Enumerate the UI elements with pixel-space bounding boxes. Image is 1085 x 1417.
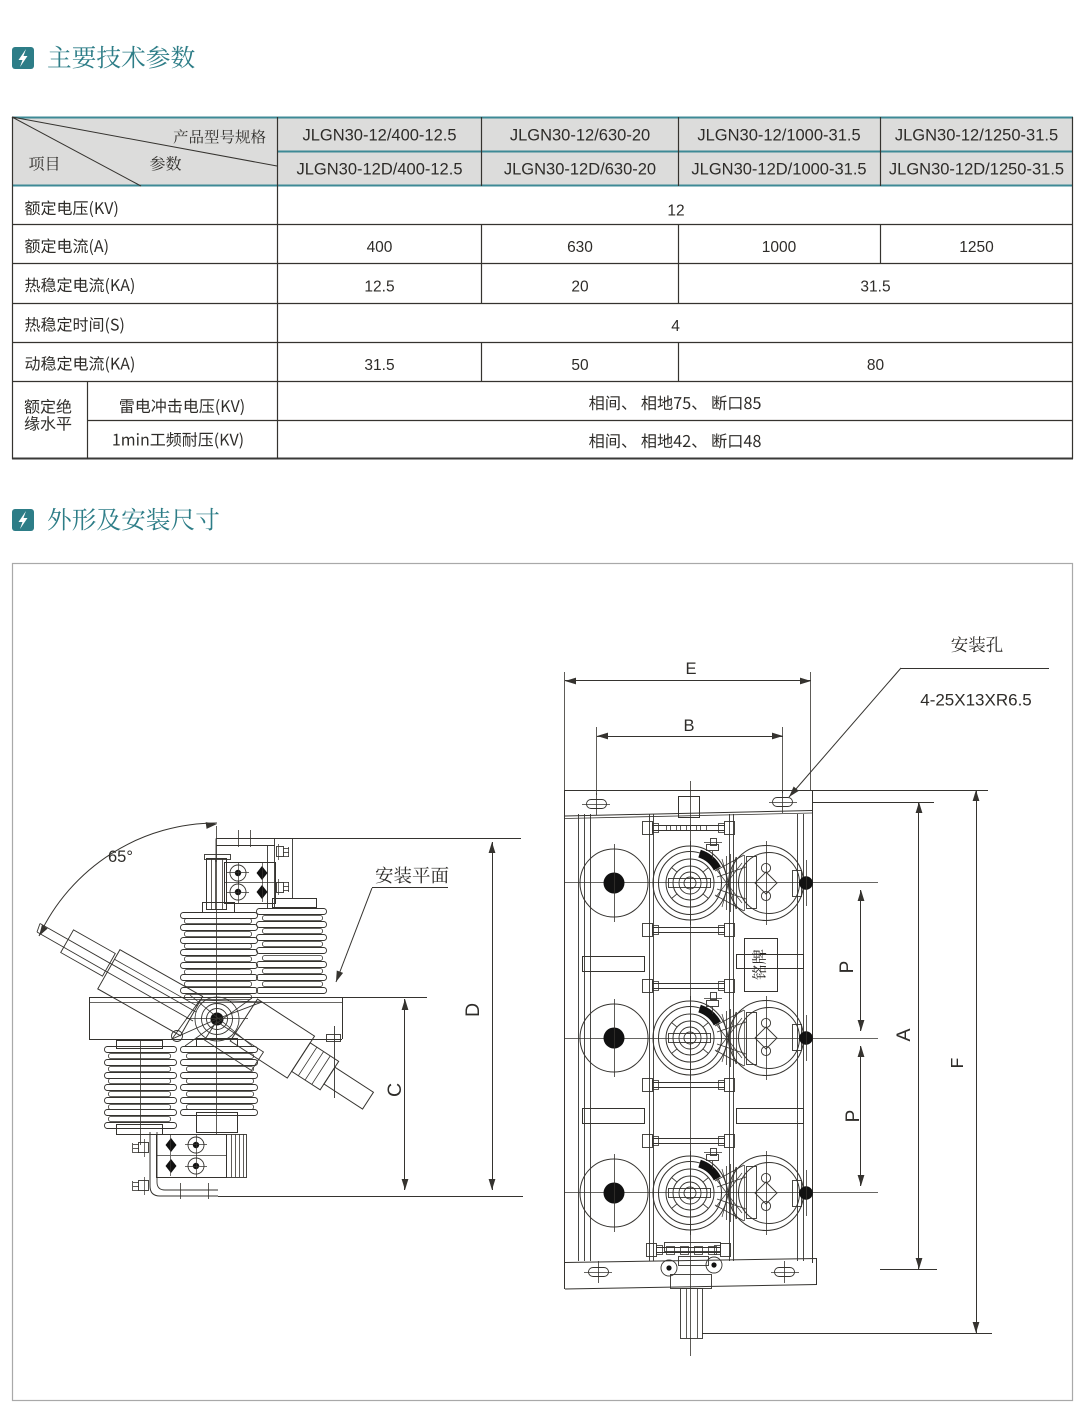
svg-text:JLGN30-12D/1000-31.5: JLGN30-12D/1000-31.5: [691, 161, 866, 179]
svg-text:D: D: [462, 1003, 484, 1017]
svg-text:JLGN30-12D/1250-31.5: JLGN30-12D/1250-31.5: [889, 161, 1064, 179]
svg-text:400: 400: [367, 239, 393, 256]
svg-text:JLGN30-12/1250-31.5: JLGN30-12/1250-31.5: [895, 127, 1058, 145]
svg-text:31.5: 31.5: [364, 357, 394, 374]
svg-text:JLGN30-12D/630-20: JLGN30-12D/630-20: [504, 161, 656, 179]
svg-text:630: 630: [567, 239, 593, 256]
svg-text:4: 4: [671, 318, 680, 335]
svg-text:P: P: [843, 1110, 864, 1123]
svg-text:65°: 65°: [108, 848, 133, 866]
svg-text:P: P: [837, 961, 858, 974]
svg-text:50: 50: [571, 357, 589, 374]
svg-text:JLGN30-12D/400-12.5: JLGN30-12D/400-12.5: [296, 161, 462, 179]
svg-text:JLGN30-12/400-12.5: JLGN30-12/400-12.5: [302, 127, 456, 145]
svg-text:12.5: 12.5: [364, 279, 394, 296]
svg-text:12: 12: [667, 203, 684, 220]
svg-text:JLGN30-12/630-20: JLGN30-12/630-20: [510, 127, 650, 145]
svg-text:4-25X13XR6.5: 4-25X13XR6.5: [920, 691, 1032, 710]
svg-text:A: A: [893, 1028, 915, 1041]
svg-text:C: C: [384, 1083, 406, 1097]
svg-text:F: F: [947, 1058, 967, 1069]
svg-text:80: 80: [867, 357, 885, 374]
svg-text:31.5: 31.5: [860, 279, 890, 296]
svg-text:E: E: [685, 660, 696, 678]
svg-text:1250: 1250: [959, 239, 994, 256]
svg-text:1000: 1000: [762, 239, 797, 256]
svg-text:20: 20: [571, 279, 589, 296]
svg-text:JLGN30-12/1000-31.5: JLGN30-12/1000-31.5: [697, 127, 860, 145]
svg-text:B: B: [683, 717, 694, 735]
